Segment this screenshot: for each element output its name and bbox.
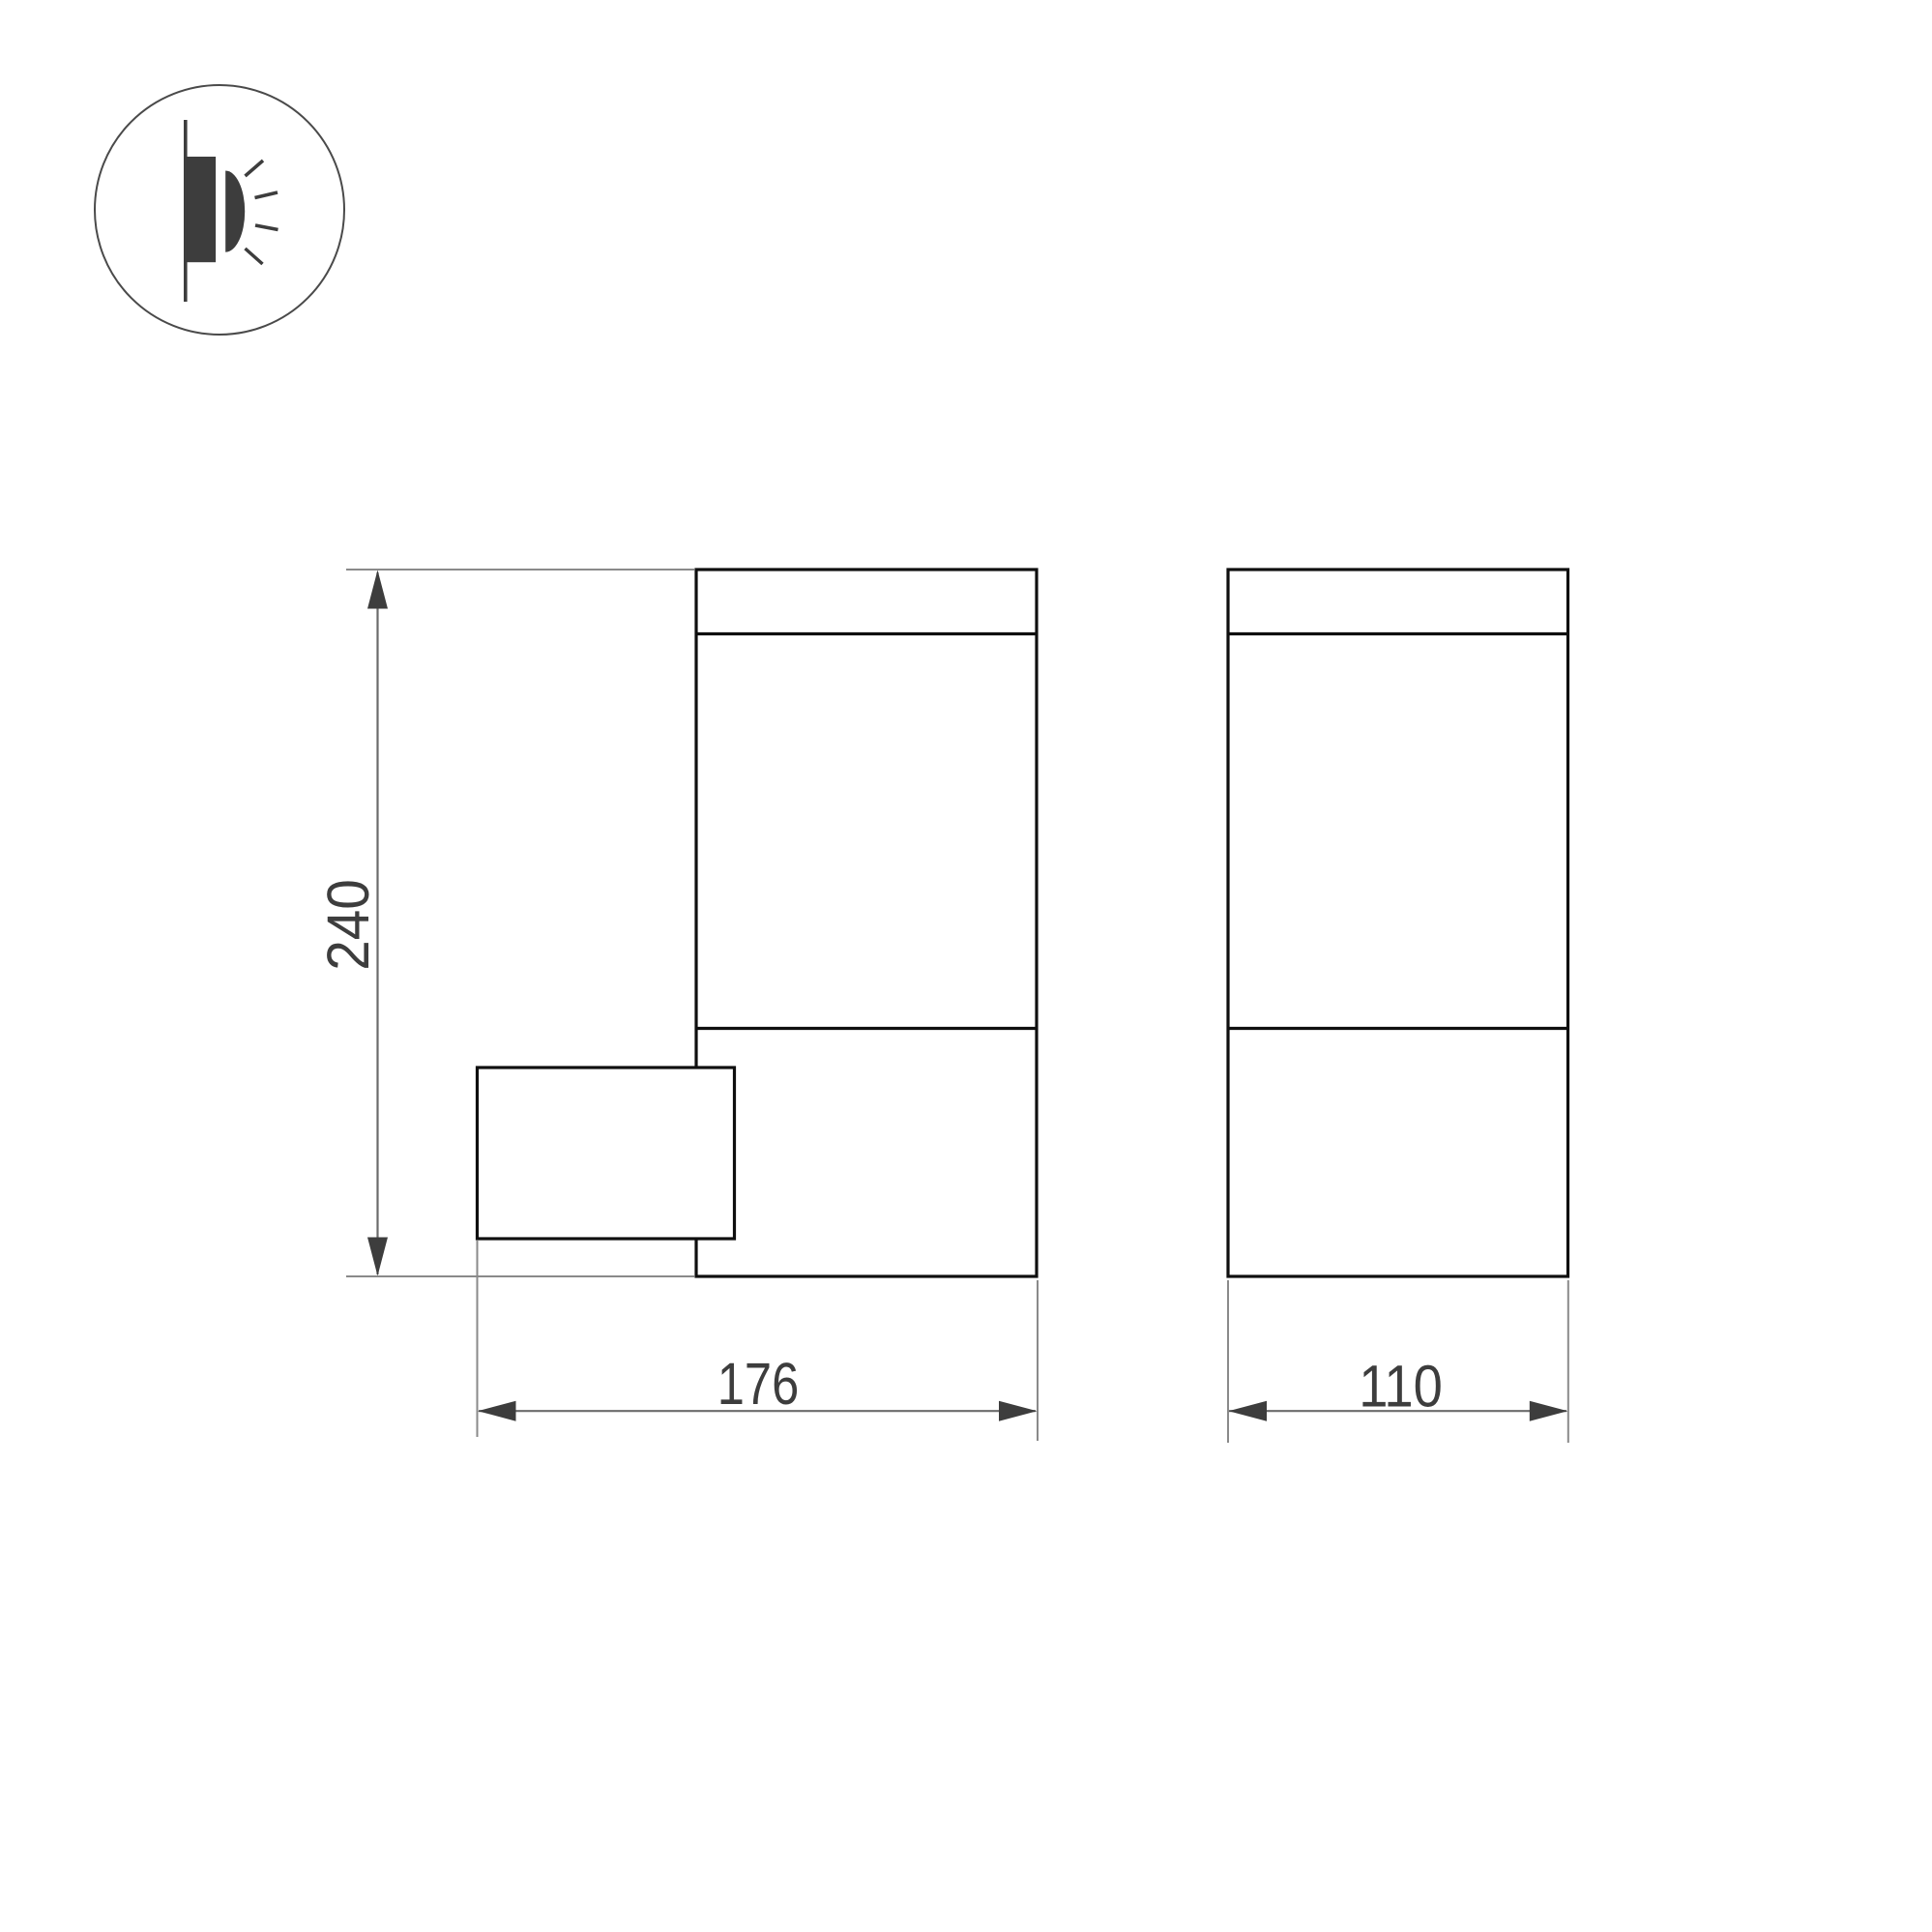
svg-text:176: 176 bbox=[717, 1351, 799, 1418]
svg-text:110: 110 bbox=[1359, 1355, 1443, 1420]
svg-text:240: 240 bbox=[316, 879, 381, 971]
